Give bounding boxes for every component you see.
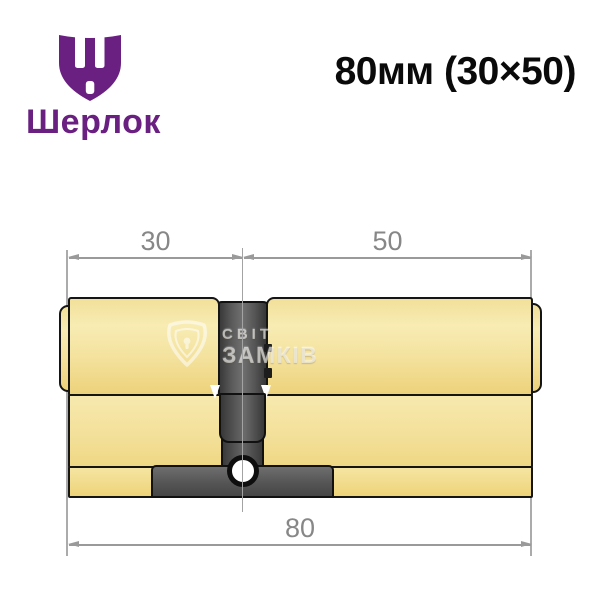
cam-segment-tab	[264, 368, 272, 378]
cam-segment-tab	[264, 344, 272, 352]
dimension-label-total: 80	[69, 513, 531, 544]
product-image-canvas: Шерлок 80мм (30×50) 30 50 80	[0, 0, 601, 605]
dimension-line-80	[69, 544, 531, 546]
dimension-label-left: 30	[69, 226, 242, 257]
cylinder-body	[68, 394, 533, 468]
brand-name: Шерлок	[26, 103, 186, 142]
dimension-line-50	[244, 257, 531, 259]
cylinder-barrel-right	[266, 297, 533, 396]
dimension-line-30	[69, 257, 242, 259]
brand-shield-icon	[57, 29, 123, 102]
size-title: 80мм (30×50)	[335, 50, 576, 94]
center-line	[242, 248, 243, 512]
dimension-label-right: 50	[244, 226, 531, 257]
cylinder-barrel-left	[68, 297, 220, 396]
